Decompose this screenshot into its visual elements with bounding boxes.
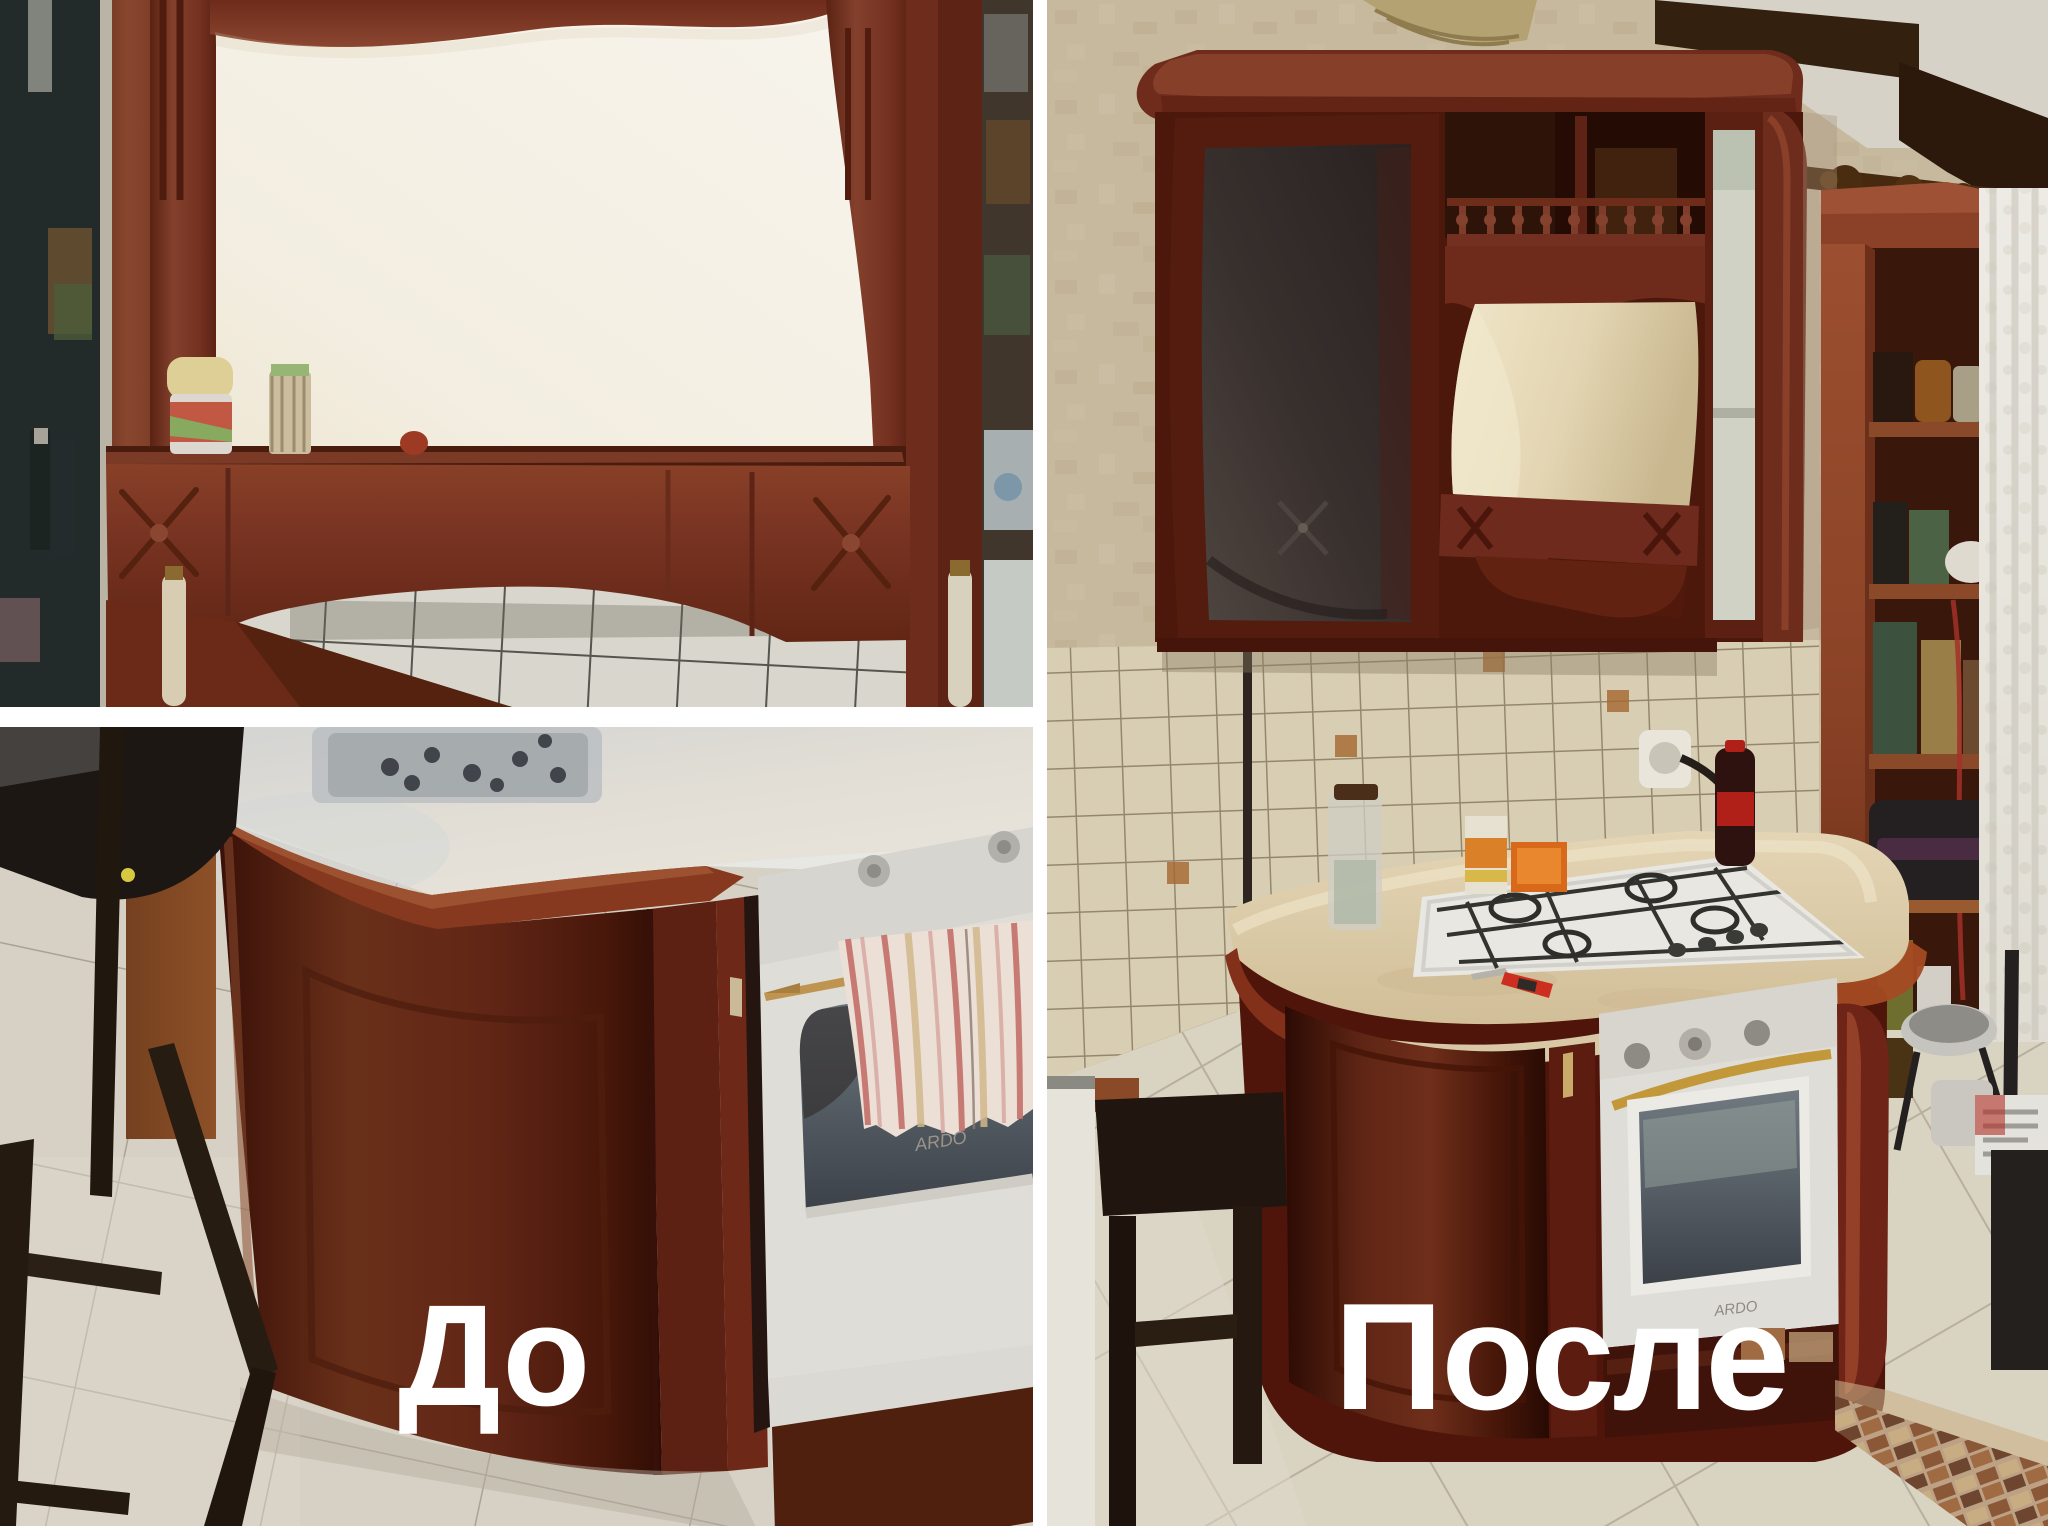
svg-text:До: До [398, 1275, 590, 1436]
svg-text:После: После [1334, 1272, 1788, 1442]
